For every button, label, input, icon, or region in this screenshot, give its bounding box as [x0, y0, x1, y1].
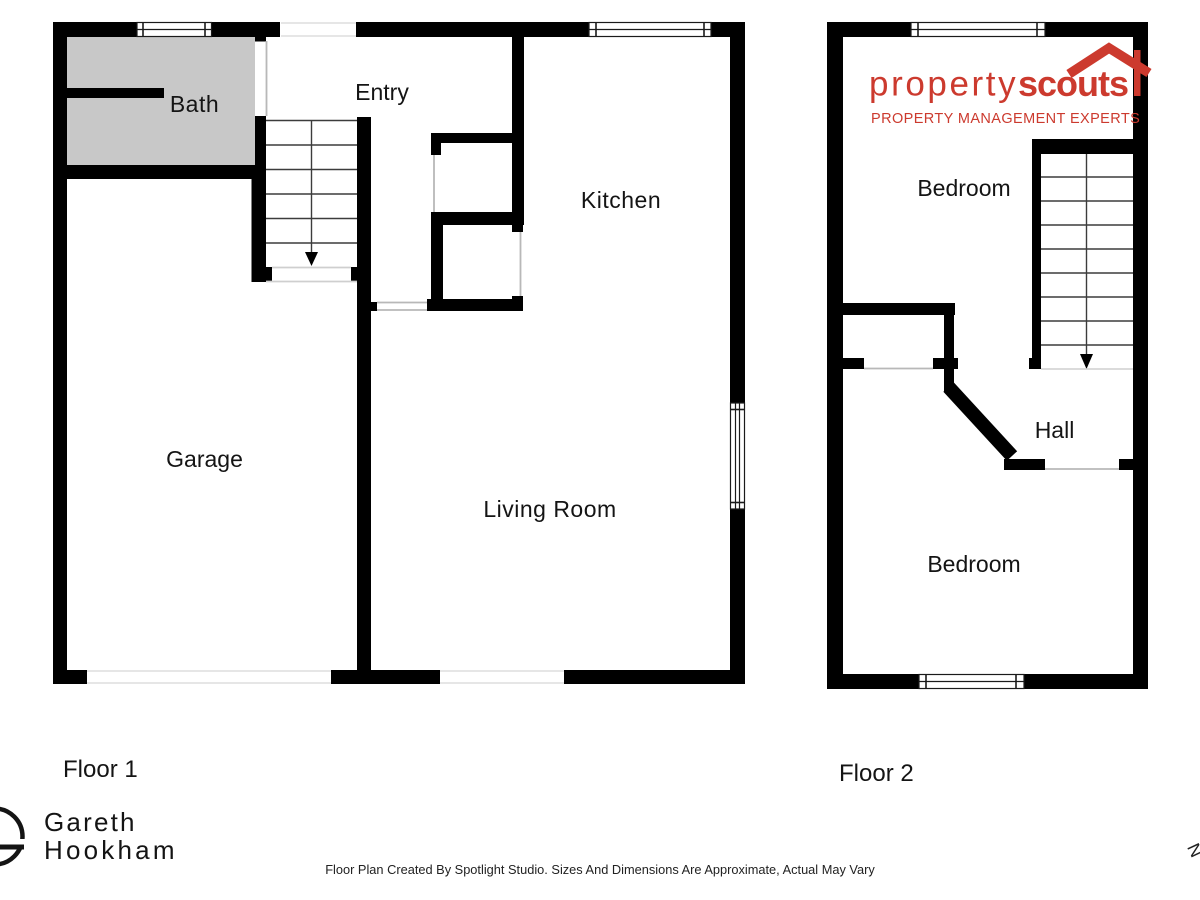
svg-text:Floor 1: Floor 1 — [63, 756, 138, 783]
svg-text:property: property — [869, 65, 1018, 104]
svg-text:Bedroom: Bedroom — [917, 175, 1010, 201]
svg-text:Floor Plan Created By Spotligh: Floor Plan Created By Spotlight Studio. … — [325, 862, 875, 877]
svg-text:PROPERTY MANAGEMENT EXPERTS: PROPERTY MANAGEMENT EXPERTS — [871, 111, 1140, 127]
svg-text:Floor 2: Floor 2 — [839, 760, 914, 787]
svg-text:Bath: Bath — [170, 91, 219, 117]
svg-text:Kitchen: Kitchen — [581, 187, 661, 213]
svg-text:Bedroom: Bedroom — [927, 551, 1020, 577]
svg-text:Gareth: Gareth — [44, 807, 137, 837]
svg-text:Garage: Garage — [166, 446, 243, 472]
svg-text:Entry: Entry — [355, 79, 409, 105]
svg-text:Hookham: Hookham — [44, 835, 178, 865]
svg-text:Living Room: Living Room — [483, 496, 616, 522]
svg-text:Hall: Hall — [1035, 417, 1075, 443]
